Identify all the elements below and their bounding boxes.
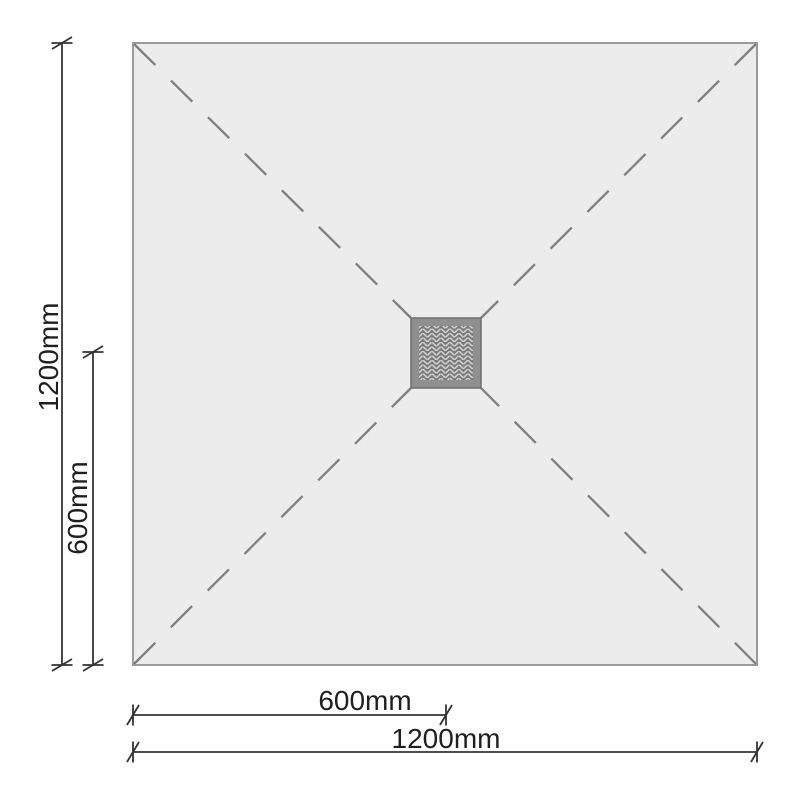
shower-tray-diagram: 1200mm 600mm 600mm 1200mm: [0, 0, 800, 800]
dimension-label-height-600: 600mm: [62, 461, 93, 554]
drain-grate: [411, 318, 481, 388]
diagram-page: 1200mm 600mm 600mm 1200mm: [0, 0, 800, 800]
dimension-label-width-1200: 1200mm: [392, 723, 501, 754]
dimension-label-width-600: 600mm: [318, 685, 411, 716]
drain-grate-pattern: [419, 326, 473, 380]
dimension-label-height-1200: 1200mm: [33, 303, 64, 412]
